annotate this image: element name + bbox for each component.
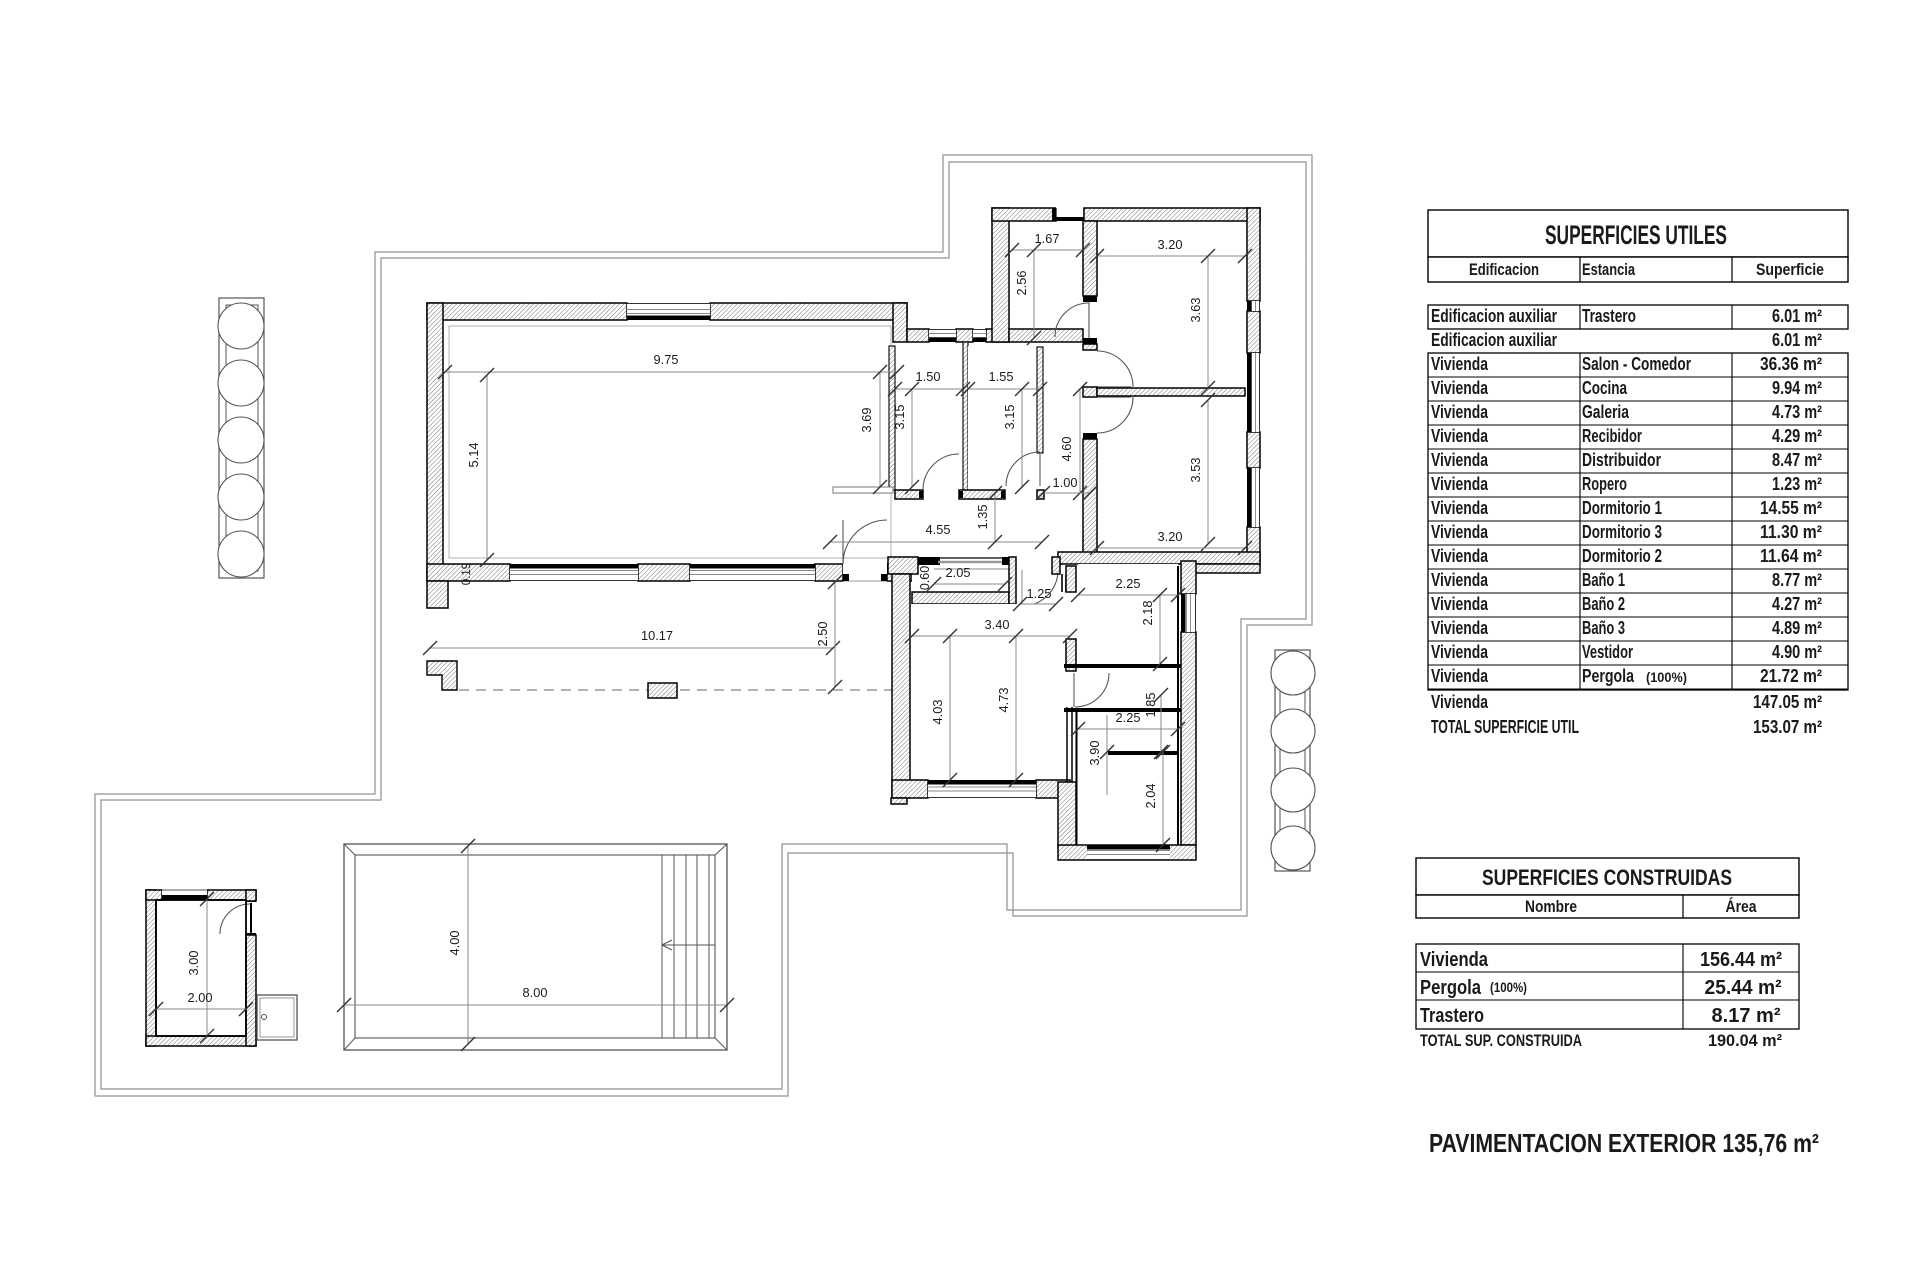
svg-text:Dormitorio 1: Dormitorio 1 [1582,498,1662,518]
svg-text:14.55 m²: 14.55 m² [1760,498,1822,518]
svg-text:6.01 m²: 6.01 m² [1772,306,1822,326]
svg-text:3.20: 3.20 [1158,237,1183,252]
svg-text:4.00: 4.00 [447,931,462,956]
svg-text:Pergola: Pergola [1582,666,1635,686]
svg-text:Vivienda: Vivienda [1431,474,1489,494]
svg-text:4.73: 4.73 [996,688,1011,713]
svg-text:Vivienda: Vivienda [1431,402,1489,422]
svg-text:Salon - Comedor: Salon - Comedor [1582,354,1691,374]
svg-text:TOTAL SUP. CONSTRUIDA: TOTAL SUP. CONSTRUIDA [1420,1031,1582,1050]
svg-text:4.60: 4.60 [1059,437,1074,462]
svg-text:9.75: 9.75 [654,352,679,367]
svg-text:1.67: 1.67 [1035,231,1060,246]
svg-text:Vivienda: Vivienda [1431,450,1489,470]
svg-text:2.56: 2.56 [1014,271,1029,296]
svg-text:25.44 m²: 25.44 m² [1705,977,1782,999]
svg-text:2.25: 2.25 [1116,710,1141,725]
svg-text:Vivienda: Vivienda [1420,949,1489,971]
svg-text:Baño 1: Baño 1 [1582,570,1625,590]
svg-text:3.69: 3.69 [859,408,874,433]
svg-text:8.47 m²: 8.47 m² [1772,450,1822,470]
svg-text:3.20: 3.20 [1158,529,1183,544]
svg-text:Dormitorio 3: Dormitorio 3 [1582,522,1662,542]
svg-text:2.04: 2.04 [1143,784,1158,809]
svg-text:10.17: 10.17 [641,628,673,643]
svg-text:3.53: 3.53 [1188,458,1203,483]
svg-text:3.15: 3.15 [1002,405,1017,430]
svg-text:3.40: 3.40 [985,617,1010,632]
svg-text:3.00: 3.00 [186,951,201,976]
svg-text:Baño 3: Baño 3 [1582,618,1625,638]
svg-text:Edificacion auxiliar: Edificacion auxiliar [1431,330,1557,350]
svg-text:Vivienda: Vivienda [1431,618,1489,638]
svg-text:11.64 m²: 11.64 m² [1760,546,1822,566]
svg-text:156.44 m²: 156.44 m² [1700,949,1782,971]
svg-text:2.25: 2.25 [1116,576,1141,591]
svg-text:2.50: 2.50 [815,622,830,647]
svg-text:Vivienda: Vivienda [1431,522,1489,542]
svg-text:Vivienda: Vivienda [1431,354,1489,374]
svg-text:1.35: 1.35 [975,505,990,530]
svg-text:(100%): (100%) [1646,670,1687,685]
svg-text:Distribuidor: Distribuidor [1582,450,1661,470]
svg-text:6.01 m²: 6.01 m² [1772,330,1822,350]
svg-text:4.55: 4.55 [926,522,951,537]
svg-text:4.73 m²: 4.73 m² [1772,402,1822,422]
svg-text:TOTAL SUPERFICIE UTIL: TOTAL SUPERFICIE UTIL [1431,717,1579,737]
svg-text:3.15: 3.15 [892,405,907,430]
svg-text:4.29 m²: 4.29 m² [1772,426,1822,446]
svg-text:4.27 m²: 4.27 m² [1772,594,1822,614]
svg-text:21.72 m²: 21.72 m² [1760,666,1822,686]
svg-text:4.03: 4.03 [930,700,945,725]
svg-text:4.90 m²: 4.90 m² [1772,642,1822,662]
svg-text:Pergola: Pergola [1420,977,1482,999]
svg-text:Ropero: Ropero [1582,474,1627,494]
svg-text:1.55: 1.55 [989,369,1014,384]
svg-text:2.18: 2.18 [1140,601,1155,626]
svg-text:9.94 m²: 9.94 m² [1772,378,1822,398]
svg-text:8.77 m²: 8.77 m² [1772,570,1822,590]
svg-text:Vivienda: Vivienda [1431,594,1489,614]
svg-text:Vivienda: Vivienda [1431,498,1489,518]
svg-text:Superficie: Superficie [1756,260,1824,279]
svg-text:0.19: 0.19 [461,563,473,585]
svg-text:36.36 m²: 36.36 m² [1760,354,1822,374]
svg-text:1.50: 1.50 [916,369,941,384]
svg-text:1.23 m²: 1.23 m² [1772,474,1822,494]
svg-text:0.60: 0.60 [918,566,932,590]
svg-text:Vivienda: Vivienda [1431,426,1489,446]
svg-text:8.00: 8.00 [523,985,548,1000]
svg-text:Vivienda: Vivienda [1431,666,1489,686]
svg-text:Vivienda: Vivienda [1431,642,1489,662]
svg-text:147.05 m²: 147.05 m² [1753,692,1822,712]
svg-text:1.00: 1.00 [1053,475,1078,490]
svg-text:1.85: 1.85 [1143,693,1158,718]
svg-text:SUPERFICIES UTILES: SUPERFICIES UTILES [1545,220,1727,250]
svg-text:Nombre: Nombre [1525,897,1577,916]
svg-text:4.89 m²: 4.89 m² [1772,618,1822,638]
svg-text:3.90: 3.90 [1087,741,1102,766]
svg-text:1.25: 1.25 [1027,586,1052,601]
svg-text:Vivienda: Vivienda [1431,570,1489,590]
svg-text:(100%): (100%) [1490,980,1527,995]
svg-text:3.63: 3.63 [1188,298,1203,323]
svg-text:153.07 m²: 153.07 m² [1753,717,1822,737]
svg-text:Vivienda: Vivienda [1431,692,1489,712]
svg-text:Trastero: Trastero [1420,1005,1484,1027]
svg-text:11.30 m²: 11.30 m² [1760,522,1822,542]
svg-text:Estancia: Estancia [1582,260,1635,279]
svg-text:Edificacion auxiliar: Edificacion auxiliar [1431,306,1557,326]
svg-text:Baño 2: Baño 2 [1582,594,1625,614]
svg-text:Edificacion: Edificacion [1469,260,1539,279]
svg-text:5.14: 5.14 [466,443,481,468]
svg-text:Vivienda: Vivienda [1431,546,1489,566]
svg-text:190.04 m²: 190.04 m² [1708,1031,1782,1050]
svg-text:Cocina: Cocina [1582,378,1628,398]
svg-text:Dormitorio 2: Dormitorio 2 [1582,546,1662,566]
svg-text:Vestidor: Vestidor [1582,642,1633,662]
svg-text:Vivienda: Vivienda [1431,378,1489,398]
svg-text:Galeria: Galeria [1582,402,1630,422]
svg-text:Trastero: Trastero [1582,306,1636,326]
svg-text:2.05: 2.05 [946,565,971,580]
svg-text:PAVIMENTACION EXTERIOR 135,76: PAVIMENTACION EXTERIOR 135,76 m² [1429,1128,1819,1158]
svg-text:Área: Área [1726,897,1757,916]
svg-text:SUPERFICIES CONSTRUIDAS: SUPERFICIES CONSTRUIDAS [1482,865,1732,890]
svg-text:2.00: 2.00 [188,990,213,1005]
svg-text:Recibidor: Recibidor [1582,426,1642,446]
svg-text:8.17 m²: 8.17 m² [1712,1005,1781,1027]
